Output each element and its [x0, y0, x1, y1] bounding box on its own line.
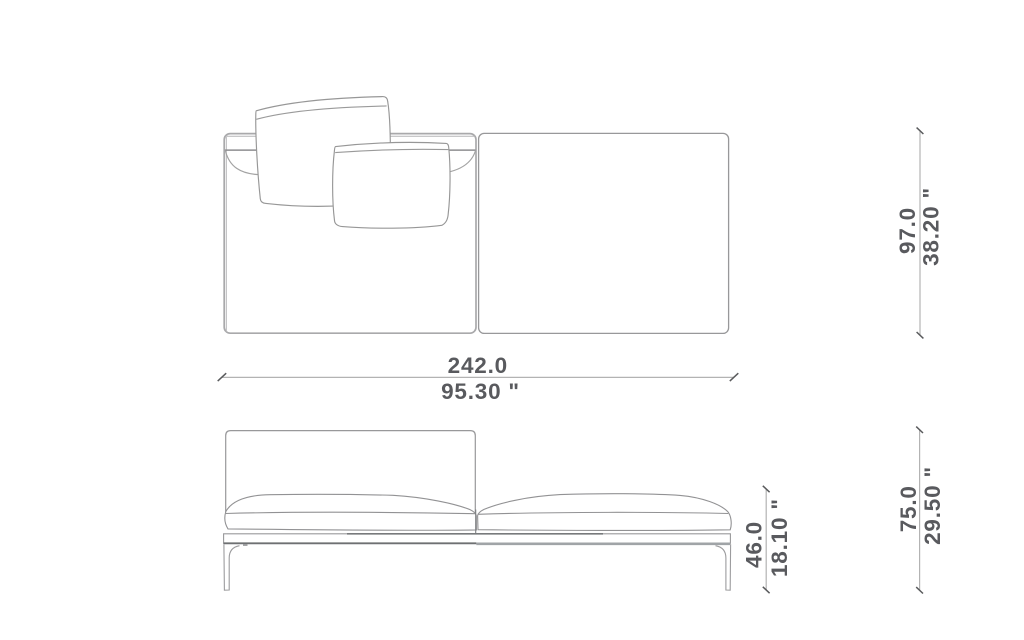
svg-text:97.0: 97.0: [895, 207, 920, 254]
svg-text:38.20 ": 38.20 ": [919, 187, 944, 266]
svg-text:75.0: 75.0: [896, 485, 921, 532]
svg-text:46.0: 46.0: [742, 521, 767, 568]
svg-text:242.0: 242.0: [448, 353, 508, 378]
svg-text:18.10 ": 18.10 ": [767, 498, 792, 577]
svg-text:29.50 ": 29.50 ": [920, 466, 945, 545]
svg-text:95.30 ": 95.30 ": [441, 379, 520, 404]
